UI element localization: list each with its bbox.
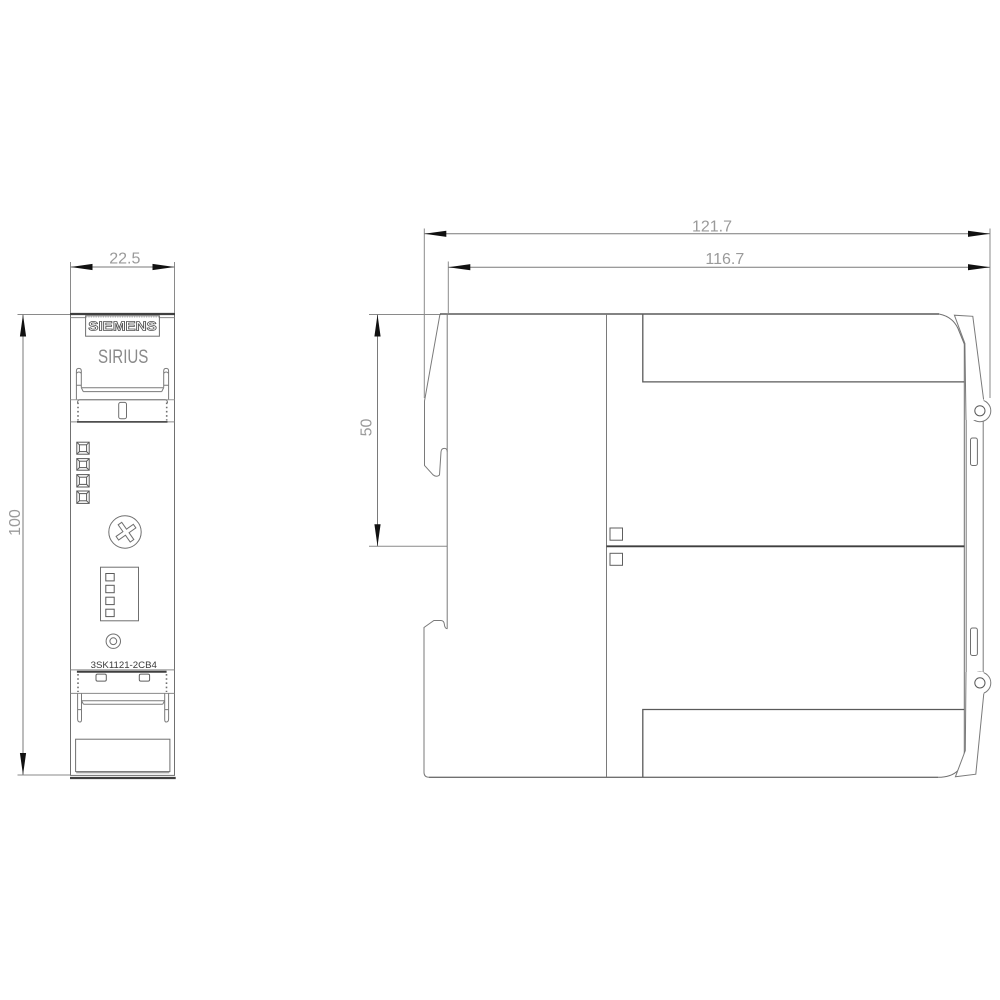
svg-text:SIRIUS: SIRIUS bbox=[98, 347, 148, 368]
svg-text:50: 50 bbox=[359, 419, 376, 437]
svg-text:116.7: 116.7 bbox=[705, 251, 744, 268]
svg-text:121.7: 121.7 bbox=[692, 219, 732, 236]
svg-text:3SK1121-2CB4: 3SK1121-2CB4 bbox=[91, 660, 157, 670]
svg-text:100: 100 bbox=[7, 509, 24, 536]
svg-text:SIEMENS: SIEMENS bbox=[88, 320, 157, 334]
svg-text:22.5: 22.5 bbox=[109, 250, 140, 267]
